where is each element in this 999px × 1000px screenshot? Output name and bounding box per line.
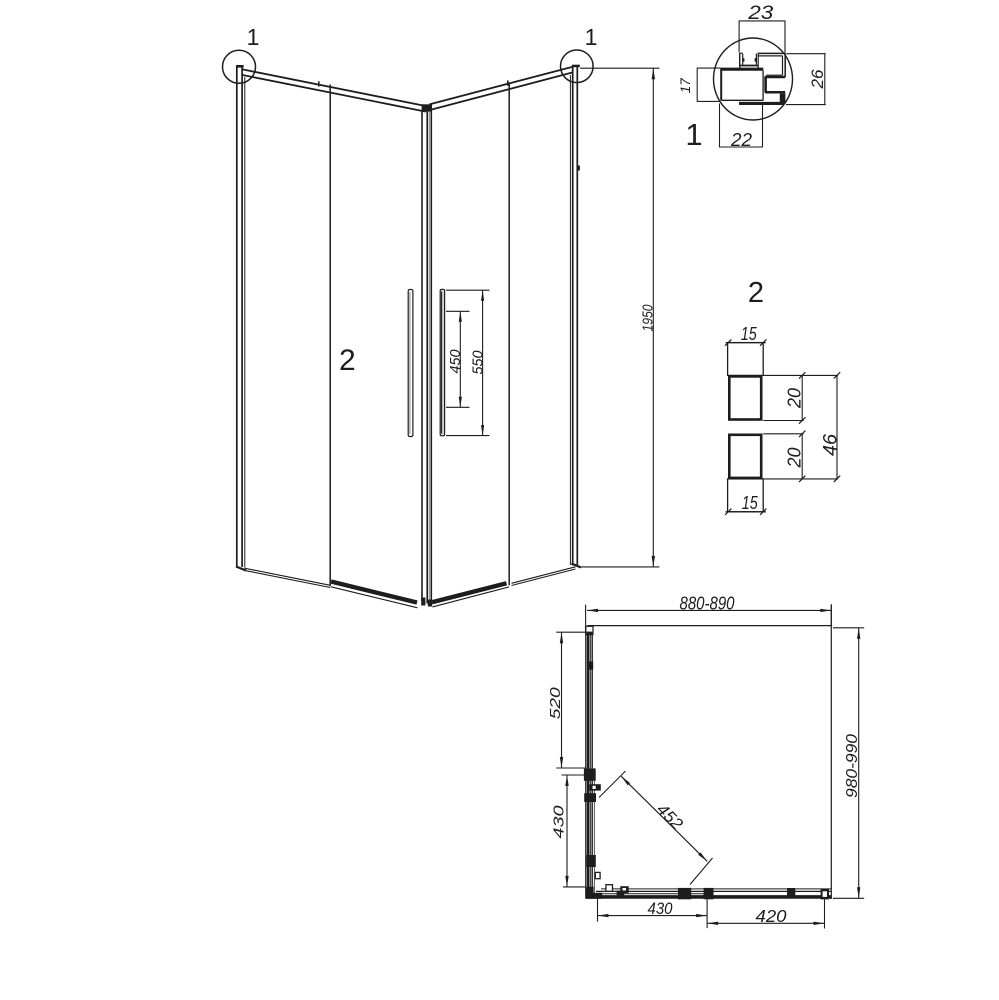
svg-text:2: 2 xyxy=(339,344,356,377)
svg-text:420: 420 xyxy=(756,906,787,926)
svg-text:1950: 1950 xyxy=(641,305,657,332)
svg-text:550: 550 xyxy=(470,350,487,375)
svg-text:17: 17 xyxy=(678,78,693,93)
svg-text:2: 2 xyxy=(748,277,764,309)
svg-text:1: 1 xyxy=(585,24,598,50)
svg-text:430: 430 xyxy=(648,899,673,918)
svg-text:520: 520 xyxy=(547,686,564,719)
svg-text:980-990: 980-990 xyxy=(844,734,861,798)
svg-text:1: 1 xyxy=(247,24,260,50)
svg-text:880-890: 880-890 xyxy=(680,592,736,613)
svg-text:20: 20 xyxy=(784,447,805,469)
svg-text:46: 46 xyxy=(820,434,842,456)
svg-text:15: 15 xyxy=(742,493,759,513)
svg-text:1: 1 xyxy=(685,117,702,152)
svg-text:22: 22 xyxy=(730,130,752,150)
svg-text:15: 15 xyxy=(741,324,758,344)
svg-text:430: 430 xyxy=(550,805,567,839)
svg-text:20: 20 xyxy=(784,387,805,409)
svg-text:450: 450 xyxy=(448,350,464,374)
svg-text:26: 26 xyxy=(808,69,827,90)
svg-text:23: 23 xyxy=(747,3,774,24)
svg-text:452: 452 xyxy=(653,800,686,833)
